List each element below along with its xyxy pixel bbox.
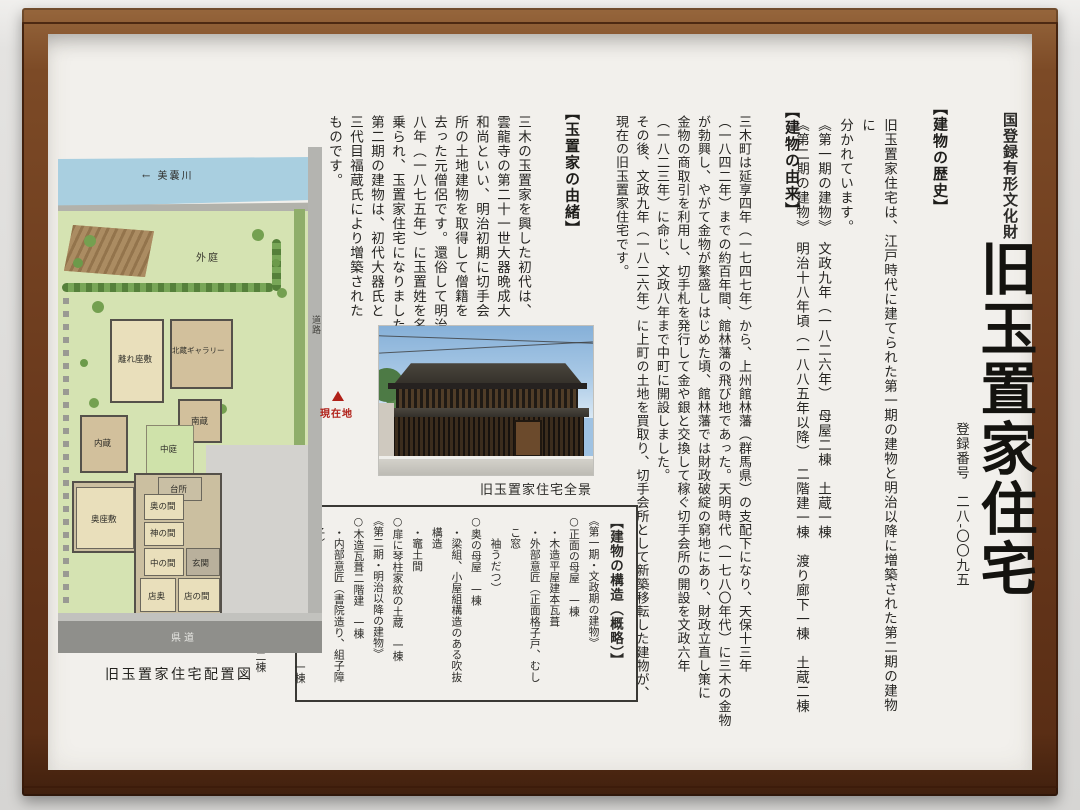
photo-caption: 旧玉置家住宅全景 <box>450 479 592 498</box>
origin-line: 三木町は延享四年（一七四七年）から、上州館林藩（群馬県）の支配下になり、天保十三… <box>733 115 754 740</box>
lineage-line: 三木の玉置家を興した初代は、 <box>512 115 533 350</box>
map-road-label: 道路 <box>309 315 322 335</box>
page-title: 旧玉置家住宅 <box>963 239 1045 599</box>
entrance-gate <box>514 420 542 457</box>
lineage-line: 去った元僧侶です。還俗して明治 <box>428 115 449 350</box>
registration-category: 国登録有形文化財 <box>1000 112 1021 240</box>
map-tilled-garden <box>64 225 154 277</box>
structure-line: 《第一期・文政期の建物》 <box>583 515 603 692</box>
registration-number: 登録番号 二八-〇〇九五 <box>951 422 971 587</box>
structure-line: ・外部意匠（正面格子戸、むしこ窓 <box>505 515 544 692</box>
current-location-label: 現在地 <box>320 405 353 420</box>
structure-line: ・木造平屋建本瓦葺 <box>544 515 564 692</box>
map-kami-room-label: 神の間 <box>150 527 176 539</box>
map-store-back-label: 店奥 <box>148 590 165 602</box>
origin-line: 金物の商取引を利用し、切手札を発行して金や銀と交換して稼ぐ切手会所の開設を文政六… <box>671 115 692 740</box>
sign-board: 国登録有形文化財 旧玉置家住宅 登録番号 二八-〇〇九五 【建物の歴史】 旧玉置… <box>0 0 1080 810</box>
lower-roof <box>383 408 588 417</box>
structure-line: 《第二期・明治以降の建物》 <box>368 515 388 692</box>
map-prefectural-road-label: 県道 <box>171 629 197 644</box>
road-surface <box>379 457 593 475</box>
lineage-line: 乗られ、玉置家住宅になりました。 <box>386 115 407 350</box>
map-courtyard-label: 中庭 <box>160 443 177 455</box>
section-heading-history: 【建物の歴史】 <box>930 100 951 216</box>
map-kitchen-label: 台所 <box>170 483 187 495</box>
history-line: 分かれています。 <box>834 118 856 718</box>
structure-line: ○正面の母屋 一棟 <box>564 515 584 692</box>
map-back-room-label: 奥の間 <box>150 500 176 512</box>
plaster-wall <box>379 403 394 457</box>
section-body-history: 旧玉置家住宅は、江戸時代に建てられた第一期の建物と明治以降に増築された第二期の建… <box>790 118 900 718</box>
wood-frame: 国登録有形文化財 旧玉置家住宅 登録番号 二八-〇〇九五 【建物の歴史】 旧玉置… <box>22 8 1058 796</box>
sign-panel: 国登録有形文化財 旧玉置家住宅 登録番号 二八-〇〇九五 【建物の歴史】 旧玉置… <box>48 34 1032 770</box>
history-line: 旧玉置家住宅は、江戸時代に建てられた第一期の建物と明治以降に増築された第二期の建… <box>856 118 900 718</box>
map-river-label: ← 美嚢川 <box>142 167 194 182</box>
map-hedge <box>62 283 274 292</box>
map-hedge <box>272 239 281 291</box>
residence-photo <box>379 326 593 475</box>
map-inner-kura-label: 内蔵 <box>94 437 111 449</box>
lineage-line: 和尚といい、明治初期に切手会 <box>470 115 491 350</box>
map-south-kura-label: 南蔵 <box>191 415 208 427</box>
map-store-room-label: 店の間 <box>184 590 210 602</box>
structure-line: ・梁組、小屋組構造のある吹抜構造 <box>427 515 466 692</box>
origin-line: （一八四二年）までの約百年間、館林藩の飛び地であった。天明時代（一七八〇年代）に… <box>712 115 733 740</box>
current-location-marker-icon <box>332 391 344 401</box>
map-sidewalk <box>58 613 322 621</box>
lineage-line: 雲龍寺の第二十一世大器晩成大 <box>491 115 512 350</box>
structure-line: ○奥の母屋 一棟 <box>466 515 486 692</box>
lattice-facade <box>388 417 585 457</box>
map-north-kura-label: 北蔵ギャラリー <box>172 345 225 356</box>
tiled-roof <box>394 363 582 384</box>
lineage-line: 第二期の建物は、初代大器氏と <box>365 115 386 350</box>
structure-line: ○扉に琴柱家紋の土蔵 一棟 <box>387 515 407 692</box>
history-line: 《第一期の建物》 文政九年（一八二六年） 母屋二棟 土蔵一棟 <box>812 118 834 718</box>
structure-line: 袖うだつ） <box>485 515 505 692</box>
map-trees <box>84 235 96 247</box>
map-caption: 旧玉置家住宅配置図 <box>105 664 254 684</box>
map-river <box>58 157 310 207</box>
section-heading-lineage: 【玉置家の由緒】 <box>562 105 583 237</box>
structure-line: 【建物の構造（概略）】 <box>603 515 627 692</box>
site-plan-map: ← 美嚢川 外庭 離れ座敷 北蔵ギャラリー 南蔵 内蔵 <box>58 147 358 661</box>
map-stone-wall <box>63 297 69 603</box>
map-detached-room-label: 離れ座敷 <box>118 353 152 365</box>
map-tree-border <box>294 209 305 453</box>
structure-line: ・竈土間 <box>407 515 427 692</box>
map-entrance-label: 玄関 <box>192 557 209 569</box>
map-road-east <box>308 147 322 617</box>
origin-line: が勃興し、やがて金物が繁盛しはじめた頃、館林藩では財政破綻の窮地にあり、財政立直… <box>692 115 713 740</box>
map-middle-room-label: 中の間 <box>150 557 176 569</box>
lineage-line: 所の土地建物を取得して僧籍を <box>449 115 470 350</box>
lineage-line: 八年（一八七五年）に玉置姓を名 <box>407 115 428 350</box>
map-outer-garden-label: 外庭 <box>196 249 220 264</box>
origin-line: （一八二三年）に命じ、文政八年まで中町に開設しました。 <box>651 115 672 740</box>
curb-line <box>379 456 593 459</box>
section-heading-origin: 【建物の由来】 <box>782 103 803 219</box>
map-back-parlor-label: 奥座敷 <box>91 513 117 525</box>
